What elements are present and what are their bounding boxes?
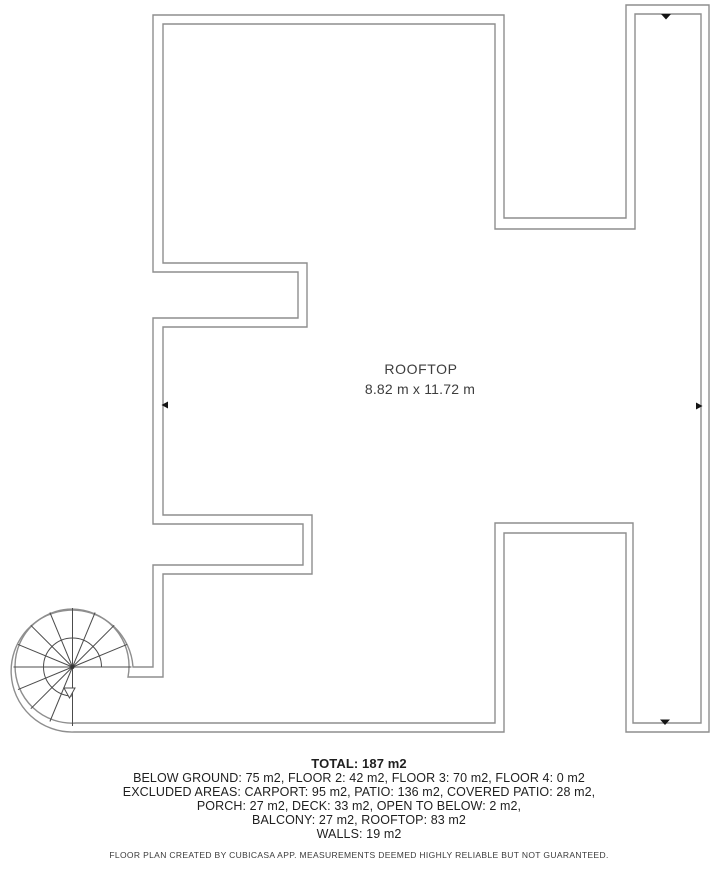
summary-line-excluded-3: BALCONY: 27 m2, ROOFTOP: 83 m2 — [0, 813, 718, 827]
area-summary: TOTAL: 187 m2 BELOW GROUND: 75 m2, FLOOR… — [0, 757, 718, 841]
room-label: ROOFTOP — [321, 361, 521, 377]
disclaimer-text: FLOOR PLAN CREATED BY CUBICASA APP. MEAS… — [0, 850, 718, 860]
spiral-staircase-center-post — [71, 665, 75, 669]
floor-plan-canvas — [0, 0, 718, 874]
dimension-marker-bottom-icon — [660, 720, 670, 726]
stair-direction-arrow-icon — [64, 688, 75, 698]
summary-line-walls: WALLS: 19 m2 — [0, 827, 718, 841]
summary-line-floors: BELOW GROUND: 75 m2, FLOOR 2: 42 m2, FLO… — [0, 771, 718, 785]
summary-line-excluded-2: PORCH: 27 m2, DECK: 33 m2, OPEN TO BELOW… — [0, 799, 718, 813]
summary-total: TOTAL: 187 m2 — [0, 757, 718, 771]
room-dimensions: 8.82 m x 11.72 m — [310, 381, 530, 397]
summary-line-excluded-1: EXCLUDED AREAS: CARPORT: 95 m2, PATIO: 1… — [0, 785, 718, 799]
floor-plan-page: ROOFTOP 8.82 m x 11.72 m TOTAL: 187 m2 B… — [0, 0, 718, 874]
dimension-marker-top-icon — [661, 14, 671, 20]
